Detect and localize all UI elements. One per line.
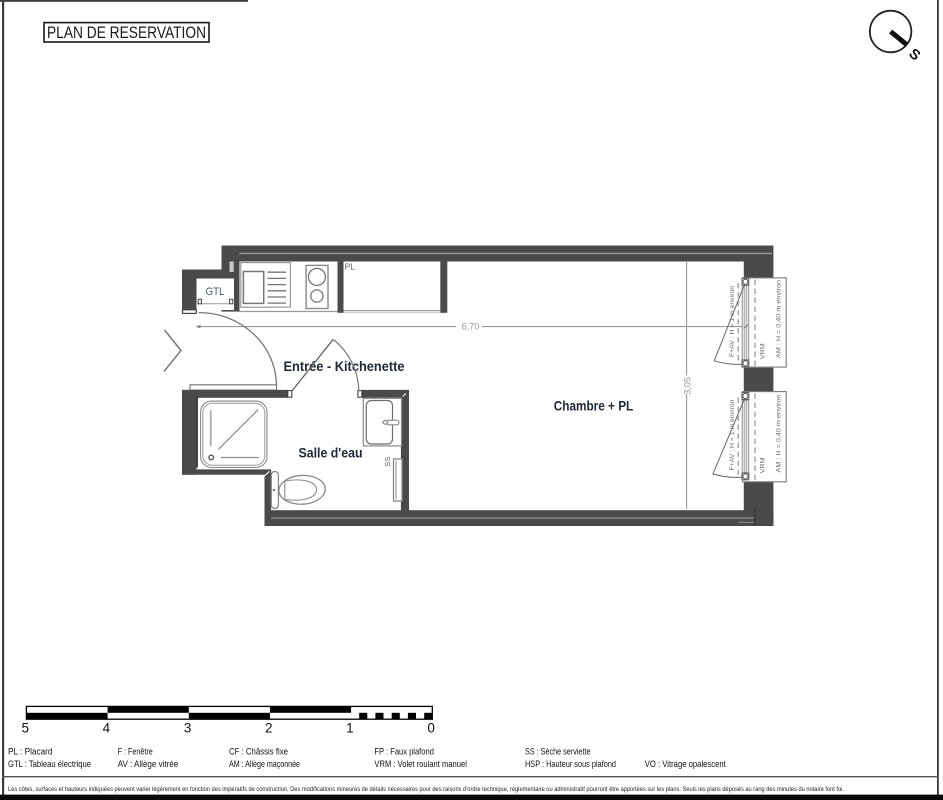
svg-text:5: 5: [21, 721, 29, 736]
svg-text:PLAN DE RESERVATION: PLAN DE RESERVATION: [47, 24, 206, 42]
svg-text:1: 1: [346, 721, 354, 736]
svg-text:CF : Châssis fixe: CF : Châssis fixe: [229, 747, 288, 758]
svg-text:AM : H = 0,40 m environ: AM : H = 0,40 m environ: [776, 280, 783, 358]
svg-text:F+AV : H = 1 m environ: F+AV : H = 1 m environ: [729, 286, 736, 357]
svg-text:GTL: GTL: [206, 286, 225, 298]
svg-text:VRM: VRM: [760, 457, 767, 473]
svg-text:PL: PL: [345, 261, 356, 271]
svg-text:Chambre + PL: Chambre + PL: [554, 399, 634, 414]
svg-text:SS : Sèche serviette: SS : Sèche serviette: [525, 747, 591, 758]
svg-text:Salle d'eau: Salle d'eau: [299, 446, 363, 461]
svg-text:GTL : Tableau électrique: GTL : Tableau électrique: [8, 759, 91, 770]
svg-text:VO : Vitrage opalescent: VO : Vitrage opalescent: [645, 759, 726, 770]
svg-text:VRM: VRM: [760, 343, 767, 359]
svg-text:SS: SS: [383, 457, 392, 467]
svg-text:AV : Allège vitrée: AV : Allège vitrée: [118, 759, 179, 770]
svg-text:2: 2: [265, 721, 273, 736]
svg-text:F+AV : H = 1 m environ: F+AV : H = 1 m environ: [729, 399, 736, 470]
svg-text:6,70: 6,70: [462, 321, 480, 331]
svg-text:AM : H = 0,40 m environ: AM : H = 0,40 m environ: [776, 394, 783, 472]
svg-text:FP : Faux plafond: FP : Faux plafond: [374, 747, 434, 758]
svg-text:3: 3: [184, 721, 192, 736]
svg-text:4: 4: [103, 721, 111, 736]
svg-text:0: 0: [427, 721, 435, 736]
svg-text:Les côtes, surfaces et hauteur: Les côtes, surfaces et hauteurs indiquée…: [8, 786, 844, 793]
svg-text:AM : Allège maçonnée: AM : Allège maçonnée: [229, 759, 300, 770]
svg-text:VRM : Volet roulant manuel: VRM : Volet roulant manuel: [374, 759, 467, 770]
svg-text:HSP : Hauteur sous plafond: HSP : Hauteur sous plafond: [525, 759, 616, 770]
svg-text:PL : Placard: PL : Placard: [8, 747, 53, 758]
svg-text:F : Fenêtre: F : Fenêtre: [118, 747, 153, 758]
svg-text:Entrée - Kitchenette: Entrée - Kitchenette: [284, 359, 405, 374]
svg-text:3,05: 3,05: [682, 377, 692, 395]
